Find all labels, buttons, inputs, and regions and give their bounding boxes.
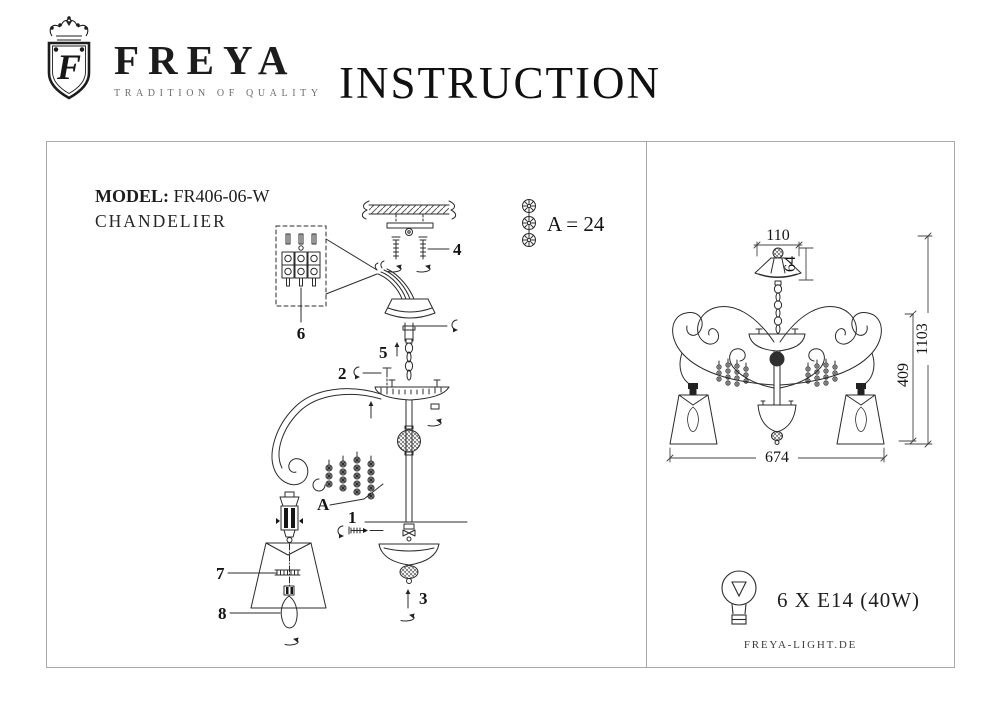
brand-tagline: TRADITION OF QUALITY xyxy=(114,88,323,99)
dim-fixture-width: 674 xyxy=(765,449,789,466)
beads-label: A xyxy=(317,495,330,514)
brand-name: FREYA xyxy=(114,40,323,81)
bulb-icon xyxy=(719,568,759,632)
crest-letter: F xyxy=(56,47,81,87)
hook-icon xyxy=(354,367,359,377)
brand-logo: F FREYA TRADITION OF QUALITY xyxy=(38,14,323,108)
dim-canopy-height: 64 xyxy=(782,256,799,272)
plate-nut xyxy=(431,404,439,409)
assembly-panel: MODEL: FR406-06-W CHANDELIER xyxy=(46,141,647,668)
part-label-8: 8 xyxy=(218,604,227,623)
hanging-screw xyxy=(363,368,391,389)
crystal-strands xyxy=(326,452,374,499)
model-value: FR406-06-W xyxy=(174,186,270,206)
rotate-arrow-icon xyxy=(417,266,430,272)
crystal-count-note: A = 24 xyxy=(547,212,605,236)
shade-ring xyxy=(275,570,300,575)
mounting-screws xyxy=(392,237,449,259)
bulb-spec: 6 X E14 (40W) xyxy=(777,588,920,613)
website: FREYA-LIGHT.DE xyxy=(647,639,954,651)
dim-bowl xyxy=(758,401,796,445)
dim-chain xyxy=(774,281,781,333)
dim-body xyxy=(749,329,805,405)
bottom-assembly xyxy=(365,522,467,541)
dim-fixture-height: 409 xyxy=(895,363,912,387)
hook-icon xyxy=(452,320,457,330)
dim-crystal-ball xyxy=(770,352,785,367)
chain xyxy=(405,339,412,380)
body-plate xyxy=(375,380,449,400)
crystal-count-icons xyxy=(523,200,536,247)
part-label-6: 6 xyxy=(297,324,306,343)
terminal-block-detail xyxy=(276,226,377,322)
hook-icon xyxy=(338,526,343,536)
mounting-bracket xyxy=(387,223,433,236)
freya-crest-icon: F xyxy=(38,14,100,108)
part-label-2: 2 xyxy=(338,364,347,383)
arm-screw xyxy=(349,527,383,534)
instruction-sheet: F FREYA TRADITION OF QUALITY INSTRUCTION… xyxy=(0,0,1000,706)
bulb-spec-row: 6 X E14 (40W) xyxy=(719,568,920,632)
rotate-arrow-icon xyxy=(285,639,298,645)
model-block: MODEL: FR406-06-W CHANDELIER xyxy=(95,184,270,234)
dim-canopy-width: 110 xyxy=(766,227,789,244)
rotate-arrow-icon xyxy=(401,615,414,621)
crystal-ball xyxy=(398,430,421,452)
part-label-7: 7 xyxy=(216,564,225,583)
product-type: CHANDELIER xyxy=(95,209,270,234)
model-label: MODEL: xyxy=(95,186,169,206)
chandelier-arm xyxy=(670,306,774,444)
dim-total-height: 1103 xyxy=(914,323,931,354)
part-label-4: 4 xyxy=(453,240,462,259)
glass-bowl xyxy=(379,544,439,584)
ceiling-cutaway xyxy=(362,201,455,223)
dim-64 xyxy=(799,248,813,280)
part-label-3: 3 xyxy=(419,589,428,608)
canopy xyxy=(385,299,435,341)
part-label-5: 5 xyxy=(379,343,388,362)
candle-bulb xyxy=(281,586,297,628)
wires xyxy=(375,261,414,299)
dimensions-panel: 110 64 xyxy=(646,141,955,668)
rotate-arrow-icon xyxy=(428,420,441,426)
central-rod xyxy=(405,400,413,522)
page-title: INSTRUCTION xyxy=(320,57,680,109)
chandelier-arm-mirror xyxy=(780,306,884,444)
part-label-1: 1 xyxy=(348,508,357,527)
